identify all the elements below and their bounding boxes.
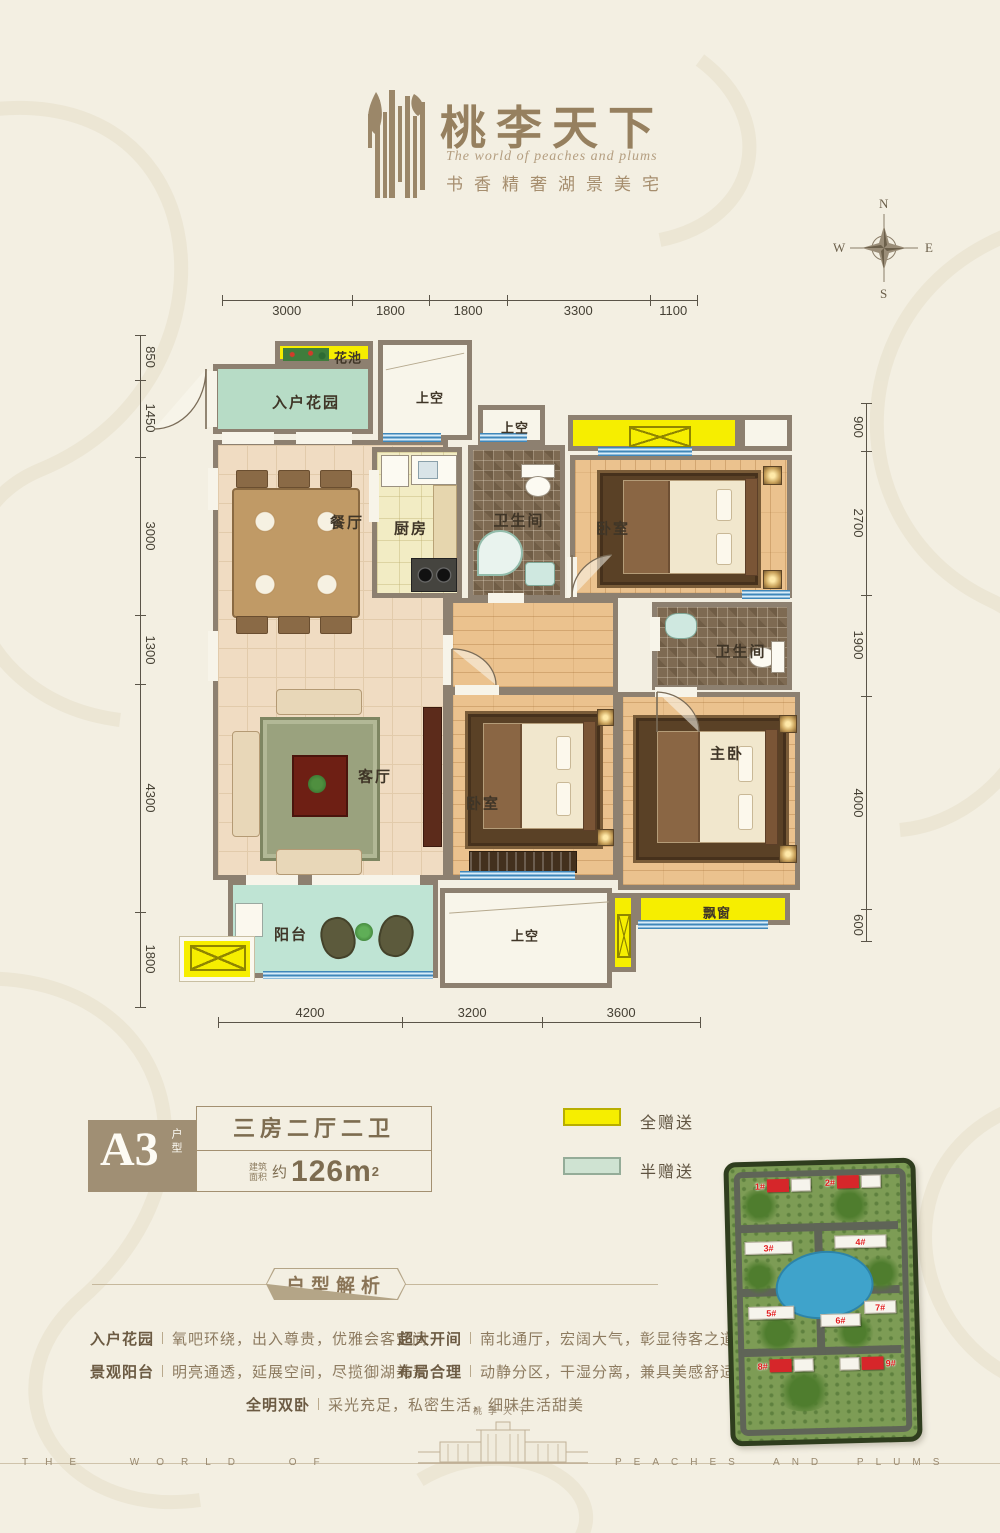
room-label: 厨房 [394, 518, 428, 539]
analysis-line: 景观阳台明亮通透，延展空间，尽揽御湖美景 [90, 1361, 428, 1382]
door-master [655, 690, 701, 734]
dim-value: 2700 [851, 508, 866, 537]
window-bath2 [742, 590, 790, 599]
balcony-chair [374, 912, 417, 961]
living-room-set [258, 703, 448, 875]
dim-value: 3200 [458, 1005, 487, 1020]
room-void-top: 上空 [378, 340, 472, 440]
dim-value: 600 [851, 914, 866, 936]
opening-bath2 [650, 617, 660, 651]
area-value: 126m [291, 1155, 372, 1189]
door-bedroom2 [450, 647, 498, 689]
room-label: 入户花园 [272, 392, 340, 413]
room-label: 卫生间 [715, 641, 766, 662]
room-label: 餐厅 [330, 512, 364, 533]
compass-rose-icon [846, 210, 922, 286]
ledge-top-right [740, 415, 792, 451]
dresser [469, 851, 577, 873]
gift-x-symbol [617, 914, 631, 958]
analysis-line: 布局合理动静分区，干湿分离，兼具美感舒适 [398, 1361, 736, 1382]
room-label: 卧室 [596, 518, 630, 539]
dim-value: 3300 [564, 303, 593, 318]
window-gap-living [208, 631, 218, 681]
window-bedroom-top [598, 447, 692, 456]
door-bedroom-top [570, 553, 614, 599]
stove [411, 558, 457, 592]
legend-swatch-half-gift [563, 1157, 621, 1175]
room-label: 客厅 [358, 766, 392, 787]
balcony-plant [355, 923, 373, 941]
site-building: 4# [834, 1234, 886, 1248]
room-label: 阳台 [274, 924, 308, 945]
area-name-label: 建筑面积 [249, 1162, 267, 1182]
window-bedroom2 [460, 871, 575, 880]
gift-box-bottom-left [180, 937, 254, 981]
site-buildings: 1#2#3#4#5#6#7#8#9# [728, 1163, 910, 1168]
room-label: 上空 [511, 926, 539, 945]
door-entry [152, 367, 210, 433]
room-balcony: 阳台 [228, 880, 438, 978]
dining-set [228, 470, 360, 632]
room-label: 飘窗 [703, 903, 731, 922]
dim-value: 3000 [272, 303, 301, 318]
unit-code-suffix: 户型 [168, 1128, 184, 1156]
dim-value: 4000 [851, 788, 866, 817]
room-label: 上空 [416, 388, 444, 407]
unit-layout: 三房二厅二卫 [197, 1107, 431, 1151]
dimension-ruler-bottom: 420032003600 [218, 1004, 700, 1034]
logo-tree-icon [362, 86, 432, 198]
room-void-bottom: 上空 [440, 888, 612, 988]
room-label: 花池 [334, 348, 362, 367]
floor-plan: 花池 入户花园 上空 上空 餐厅 客厅 [150, 335, 810, 1000]
void-edge-line [449, 901, 609, 913]
footer-text-left: THE WORLD OF [22, 1457, 337, 1468]
compass-north-label: N [879, 196, 888, 212]
room-label: 卧室 [466, 793, 500, 814]
room-flower-bed: 花池 [275, 341, 373, 364]
gift-column [610, 893, 636, 972]
compass-east-label: E [925, 240, 933, 256]
void-edge-line [386, 353, 464, 371]
site-building: 1# [755, 1178, 811, 1192]
gift-x-symbol [190, 945, 246, 971]
opening-bath1 [488, 593, 524, 603]
unit-area: 建筑面积 约 126m 2 [197, 1151, 431, 1192]
room-bath-2: 卫生间 [652, 602, 792, 690]
unit-spec-box: 三房二厅二卫 建筑面积 约 126m 2 [196, 1106, 432, 1192]
unit-type-badge: A3 户型 [88, 1120, 196, 1192]
dimension-ruler-right: 900270019004000600 [852, 403, 886, 941]
dim-value: 1100 [659, 303, 687, 318]
area-approx: 约 [272, 1161, 287, 1182]
room-bedroom-2: 卧室 [448, 690, 618, 880]
compass-west-label: W [833, 240, 845, 256]
opening-balcony [312, 875, 420, 885]
flower-planter [283, 348, 329, 361]
legend-label-half-gift: 半赠送 [640, 1158, 694, 1182]
window-kitchen [383, 433, 441, 442]
analysis-line: 入户花园氧吧环绕，出入尊贵，优雅会客空间 [90, 1328, 428, 1349]
legend-swatch-full-gift [563, 1108, 621, 1126]
brand-tagline: 书香精奢湖景美宅 [446, 170, 670, 195]
dim-value: 900 [851, 416, 866, 438]
washer [235, 903, 263, 937]
dim-value: 4200 [296, 1005, 325, 1020]
site-building: 8# [757, 1358, 813, 1372]
opening-garden [296, 432, 352, 444]
gift-x-symbol [629, 426, 691, 448]
site-building: 5# [748, 1306, 794, 1320]
window-balcony [263, 971, 433, 979]
site-building: 3# [744, 1241, 792, 1255]
opening-balcony [246, 875, 298, 885]
site-plan-map: 1#2#3#4#5#6#7#8#9# [723, 1158, 922, 1447]
analysis-title-badge: 户型解析 [266, 1268, 406, 1300]
balcony-chair [316, 914, 359, 963]
analysis-line: 超大开间南北通厅，宏阔大气，彰显待客之道 [398, 1328, 736, 1349]
dim-value: 1800 [454, 303, 483, 318]
poster-page: 桃李天下 The world of peaches and plums 书香精奢… [0, 0, 1000, 1533]
dim-value: 1800 [376, 303, 405, 318]
site-building: 2# [825, 1174, 881, 1188]
opening-kitchen [369, 470, 379, 522]
legend-label-full-gift: 全赠送 [640, 1109, 694, 1133]
tv-cabinet [423, 707, 442, 847]
room-entry-garden: 入户花园 [213, 364, 373, 434]
site-building: 9# [839, 1356, 895, 1370]
room-label: 上空 [501, 418, 529, 437]
gift-area-top [568, 415, 740, 451]
site-building: 6# [820, 1313, 860, 1327]
site-building: 7# [864, 1300, 896, 1314]
gate-illustration [418, 1414, 588, 1464]
window-gap-dining [208, 468, 218, 510]
room-label: 主卧 [710, 743, 744, 764]
dim-value: 1900 [851, 631, 866, 660]
dimension-ruler-top: 30001800180033001100 [222, 292, 697, 322]
unit-code: A3 [100, 1122, 159, 1177]
analysis-title: 户型解析 [267, 1269, 405, 1299]
room-master-bedroom: 主卧 [618, 692, 800, 890]
opening-garden [222, 432, 274, 444]
compass-south-label: S [880, 286, 887, 302]
brand-subtitle-english: The world of peaches and plums [446, 149, 658, 165]
room-label: 卫生间 [493, 510, 544, 531]
room-bath-1: 卫生间 [468, 445, 565, 600]
dim-value: 3600 [607, 1005, 636, 1020]
room-kitchen: 厨房 [372, 447, 462, 598]
area-superscript: 2 [372, 1164, 379, 1179]
footer-text-right: PEACHES AND PLUMS [615, 1457, 951, 1468]
